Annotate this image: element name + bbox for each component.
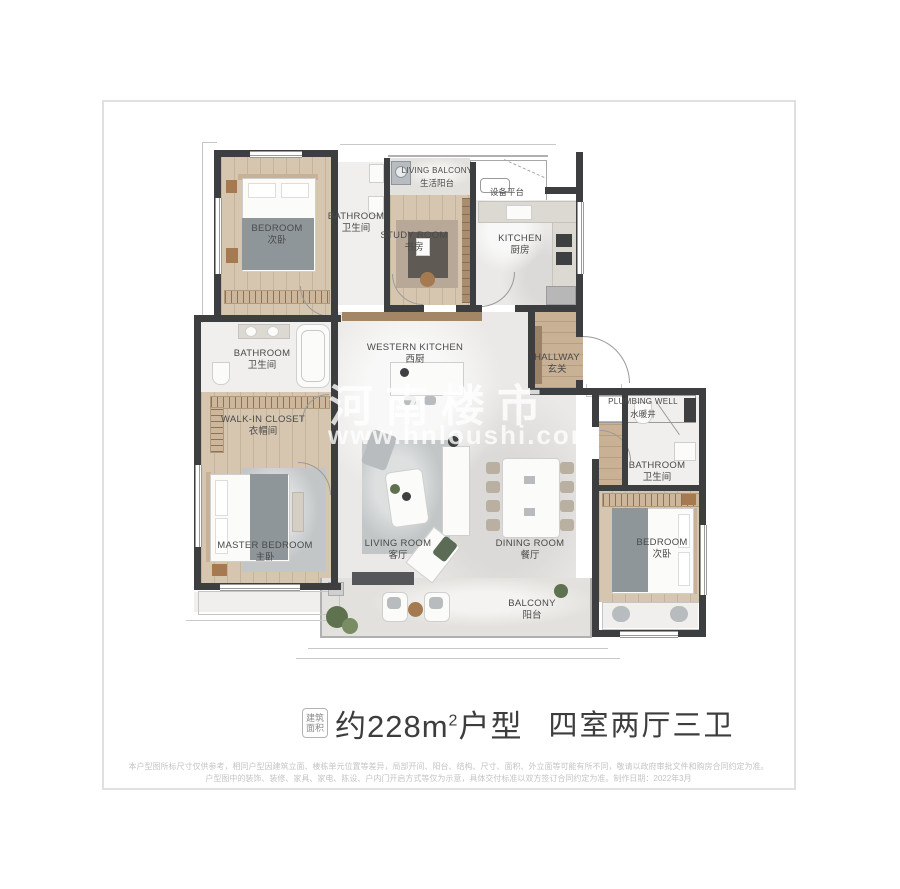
disclaimer-line-1: 本户型图所标尺寸仅供参考，相同户型因建筑立面、楼栋单元位置等差异，局部开间、阳台… [102, 761, 795, 773]
stool [212, 564, 227, 576]
table-decor [524, 508, 535, 516]
washbasin [267, 326, 279, 337]
wall [331, 150, 338, 329]
dining-chair [486, 462, 500, 474]
chair-cushion [387, 597, 401, 609]
window [577, 202, 584, 274]
window [195, 465, 202, 547]
sideboard [342, 312, 482, 321]
bay-cushion [612, 606, 630, 622]
chair-cushion [429, 597, 443, 609]
master-bay-step-line [186, 620, 350, 621]
wall [331, 322, 338, 583]
label-bathroom-left: BATHROOM 卫生间 [234, 348, 291, 372]
door-arc-entrance [583, 336, 630, 383]
table-decor [402, 492, 411, 501]
pillow [215, 480, 228, 516]
side-table [408, 602, 423, 617]
label-zh: 厨房 [498, 245, 542, 257]
watermark-url: www.hnloushi.com [328, 420, 554, 451]
window [620, 631, 678, 638]
label-en: BATHROOM [328, 211, 385, 223]
label-zh: 卫生间 [328, 223, 385, 235]
parapet-step-line-1 [308, 648, 608, 649]
label-living-room: LIVING ROOM 客厅 [365, 538, 432, 562]
top-parapet-line [340, 144, 556, 145]
label-en: HALLWAY [534, 352, 580, 364]
plant [554, 584, 568, 598]
cooktop-burner [556, 252, 572, 265]
dining-chair [560, 462, 574, 474]
wall [390, 305, 424, 312]
label-dining-room: DINING ROOM 餐厅 [496, 538, 565, 562]
label-zh: 阳台 [508, 610, 556, 622]
label-zh: 书房 [380, 242, 447, 254]
label-zh: 西厨 [367, 354, 463, 366]
label-zh: 设备平台 [490, 186, 524, 198]
area-value: 约228m [335, 709, 449, 744]
window [220, 584, 300, 591]
label-master-bedroom: MASTER BEDROOM 主卧 [217, 540, 313, 564]
disclaimer-line-2: 户型图中的装饰、装修、家具、家电、陈设、户内门开启方式等仅为示意，具体交付标准以… [102, 773, 795, 785]
unit-layout-title: 四室两厅三卫 [548, 702, 734, 744]
wall [584, 388, 706, 395]
label-en: BATHROOM [629, 460, 686, 472]
label-zh: 卫生间 [629, 472, 686, 484]
parapet-step-line-2 [296, 658, 620, 659]
area-superscript: 2 [449, 712, 459, 729]
bedroom-bench [292, 492, 304, 532]
label-hallway: HALLWAY 玄关 [534, 352, 580, 376]
nightstand [226, 180, 237, 193]
washbasin [245, 326, 257, 337]
label-en: KITCHEN [498, 233, 542, 245]
page: { "watermark": { "brand": "河南楼市", "url":… [0, 0, 900, 889]
label-balcony: BALCONY 阳台 [508, 598, 556, 622]
badge-line-2: 面积 [306, 723, 324, 733]
plant [390, 484, 400, 494]
label-en: LIVING BALCONY [402, 165, 473, 177]
label-en: BEDROOM [636, 537, 687, 549]
label-en: DINING ROOM [496, 538, 565, 550]
bathtub-inner [301, 330, 325, 382]
label-en: WALK-IN CLOSET [221, 414, 305, 426]
label-en: MASTER BEDROOM [217, 540, 313, 552]
dining-chair [486, 519, 500, 531]
wall [194, 315, 341, 322]
window [250, 151, 302, 158]
label-bathroom-right: BATHROOM 卫生间 [629, 460, 686, 484]
nightstand [226, 248, 238, 263]
dining-chair [486, 481, 500, 493]
cooktop-burner [556, 234, 572, 247]
label-study: STUDY ROOM 书房 [380, 230, 447, 254]
label-zh: 客厅 [365, 550, 432, 562]
bay-cushion [670, 606, 688, 622]
label-walk-in-closet: WALK-IN CLOSET 衣帽间 [221, 414, 305, 438]
dining-table [502, 458, 560, 538]
living-balcony-rail [388, 155, 548, 157]
label-bedroom-right: BEDROOM 次卧 [636, 537, 687, 561]
refrigerator [546, 286, 576, 305]
label-bedroom-top: BEDROOM 次卧 [251, 223, 302, 247]
shower-column [684, 398, 696, 422]
label-zh: 餐厅 [496, 550, 565, 562]
toilet [212, 362, 230, 385]
label-en: WESTERN KITCHEN [367, 342, 463, 354]
nightstand [682, 494, 696, 505]
balcony-rail-bottom [320, 636, 592, 638]
label-zh: 衣帽间 [221, 426, 305, 438]
wall [515, 305, 577, 312]
label-plumbing-well: PLUMBING WELL 水暖井 [608, 396, 678, 420]
label-zh: 生活阳台 [402, 177, 473, 189]
badge-line-1: 建筑 [306, 713, 324, 723]
label-zh: 水暖井 [608, 408, 678, 420]
wall [456, 305, 482, 312]
pillow [248, 183, 276, 198]
label-equipment-platform: 设备平台 [490, 186, 524, 198]
dining-chair [560, 481, 574, 493]
label-zh: 玄关 [534, 364, 580, 376]
washbasin [369, 164, 384, 183]
tv-console [352, 572, 414, 585]
label-zh: 次卧 [251, 235, 302, 247]
wall [598, 485, 699, 491]
label-zh: 卫生间 [234, 360, 291, 372]
dining-chair [560, 500, 574, 512]
plant [342, 618, 358, 634]
label-en: BEDROOM [251, 223, 302, 235]
disclaimer: 本户型图所标尺寸仅供参考，相同户型因建筑立面、楼栋单元位置等差异，局部开间、阳台… [102, 761, 795, 785]
window [700, 525, 707, 595]
unit-area-title: 约228m2户型 [335, 701, 522, 746]
pillow [281, 183, 309, 198]
master-bay-outline [198, 591, 340, 615]
label-western-kitchen: WESTERN KITCHEN 西厨 [367, 342, 463, 366]
kitchen-sink [506, 205, 532, 220]
label-en: BALCONY [508, 598, 556, 610]
area-badge: 建筑 面积 [302, 708, 328, 738]
sofa [442, 446, 470, 536]
label-bathroom-top: BATHROOM 卫生间 [328, 211, 385, 235]
label-en: BATHROOM [234, 348, 291, 360]
dining-chair [560, 519, 574, 531]
table-decor [524, 476, 535, 484]
window [215, 198, 222, 274]
wall [194, 315, 201, 590]
label-zh: 主卧 [217, 552, 313, 564]
title-block: 建筑 面积 约228m2户型 四室两厅三卫 [302, 702, 734, 744]
floor-plan: 河南楼市 www.hnloushi.com BEDROOM 次卧 BATHROO… [150, 140, 750, 680]
label-en: STUDY ROOM [380, 230, 447, 242]
label-kitchen: KITCHEN 厨房 [498, 233, 542, 257]
label-zh: 次卧 [636, 549, 687, 561]
wall [699, 388, 706, 637]
wall [545, 187, 576, 194]
label-living-balcony: LIVING BALCONY 生活阳台 [402, 165, 473, 189]
bookshelf [462, 198, 470, 303]
label-en: LIVING ROOM [365, 538, 432, 550]
label-en: PLUMBING WELL [608, 396, 678, 408]
dining-chair [486, 500, 500, 512]
area-suffix: 户型 [458, 709, 522, 744]
washbasin [674, 442, 696, 461]
